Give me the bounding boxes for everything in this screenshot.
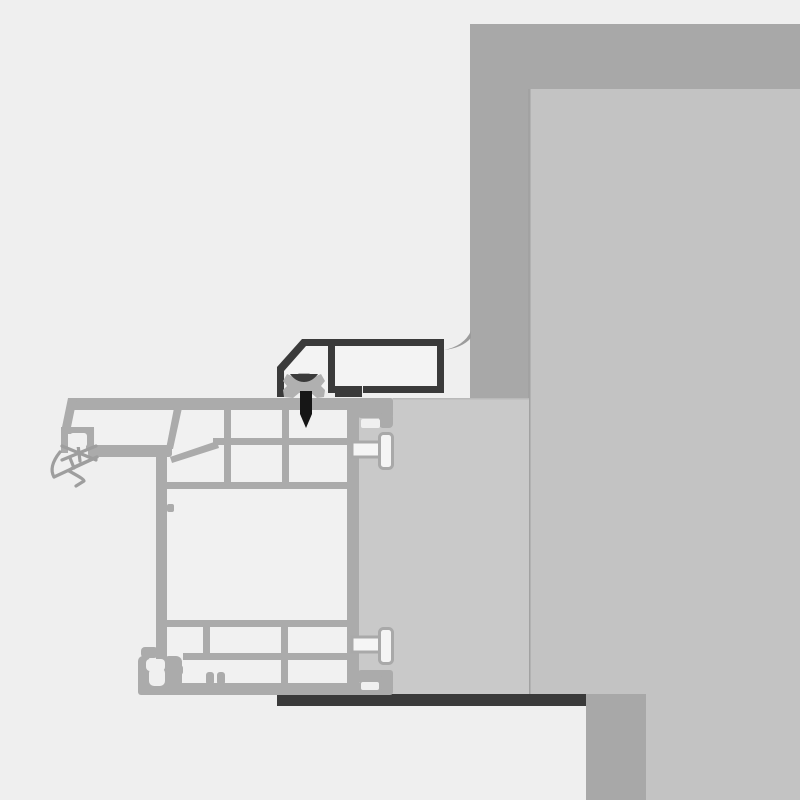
retaining-hook-bottom-lip: [379, 676, 393, 690]
profile-tooth-1: [206, 672, 214, 685]
sill-sealing-strip: [277, 694, 586, 706]
diagram-stage: [0, 0, 800, 800]
bracket-fill-right: [334, 345, 438, 387]
cross-section-diagram: [0, 0, 800, 800]
anchor-plug-top-cap: [380, 434, 393, 469]
profile-web-v2: [282, 408, 289, 484]
gasket-cross-3: [78, 445, 80, 461]
bracket-clip-strip: [335, 386, 362, 397]
retaining-hook-top-lip: [379, 413, 393, 428]
profile-web-h2: [163, 482, 355, 489]
anchor-plug-bottom-cap: [380, 629, 393, 664]
profile-foot-bump: [176, 665, 183, 675]
foot-slot-lower: [149, 668, 165, 686]
hook-bottom-notch: [361, 682, 379, 690]
wall-band-vertical: [470, 24, 528, 399]
chamber-main: [163, 487, 350, 621]
profile-web-v3: [203, 626, 210, 655]
hook-notch: [70, 433, 87, 447]
bracket-divider: [328, 346, 335, 393]
wall-interior-lower: [646, 694, 800, 800]
profile-web-v4: [281, 626, 288, 688]
chamber-row3: [161, 626, 350, 657]
wall-band-lower: [586, 694, 646, 800]
wall-interior-fill: [528, 89, 800, 694]
profile-wall-nub: [167, 504, 174, 512]
chamber-row4: [172, 659, 350, 687]
screw-shaft: [300, 391, 312, 414]
profile-web-h3: [156, 620, 355, 627]
hook-top-notch: [361, 419, 380, 428]
profile-tooth-2: [217, 672, 225, 685]
profile-web-v1: [224, 408, 231, 484]
